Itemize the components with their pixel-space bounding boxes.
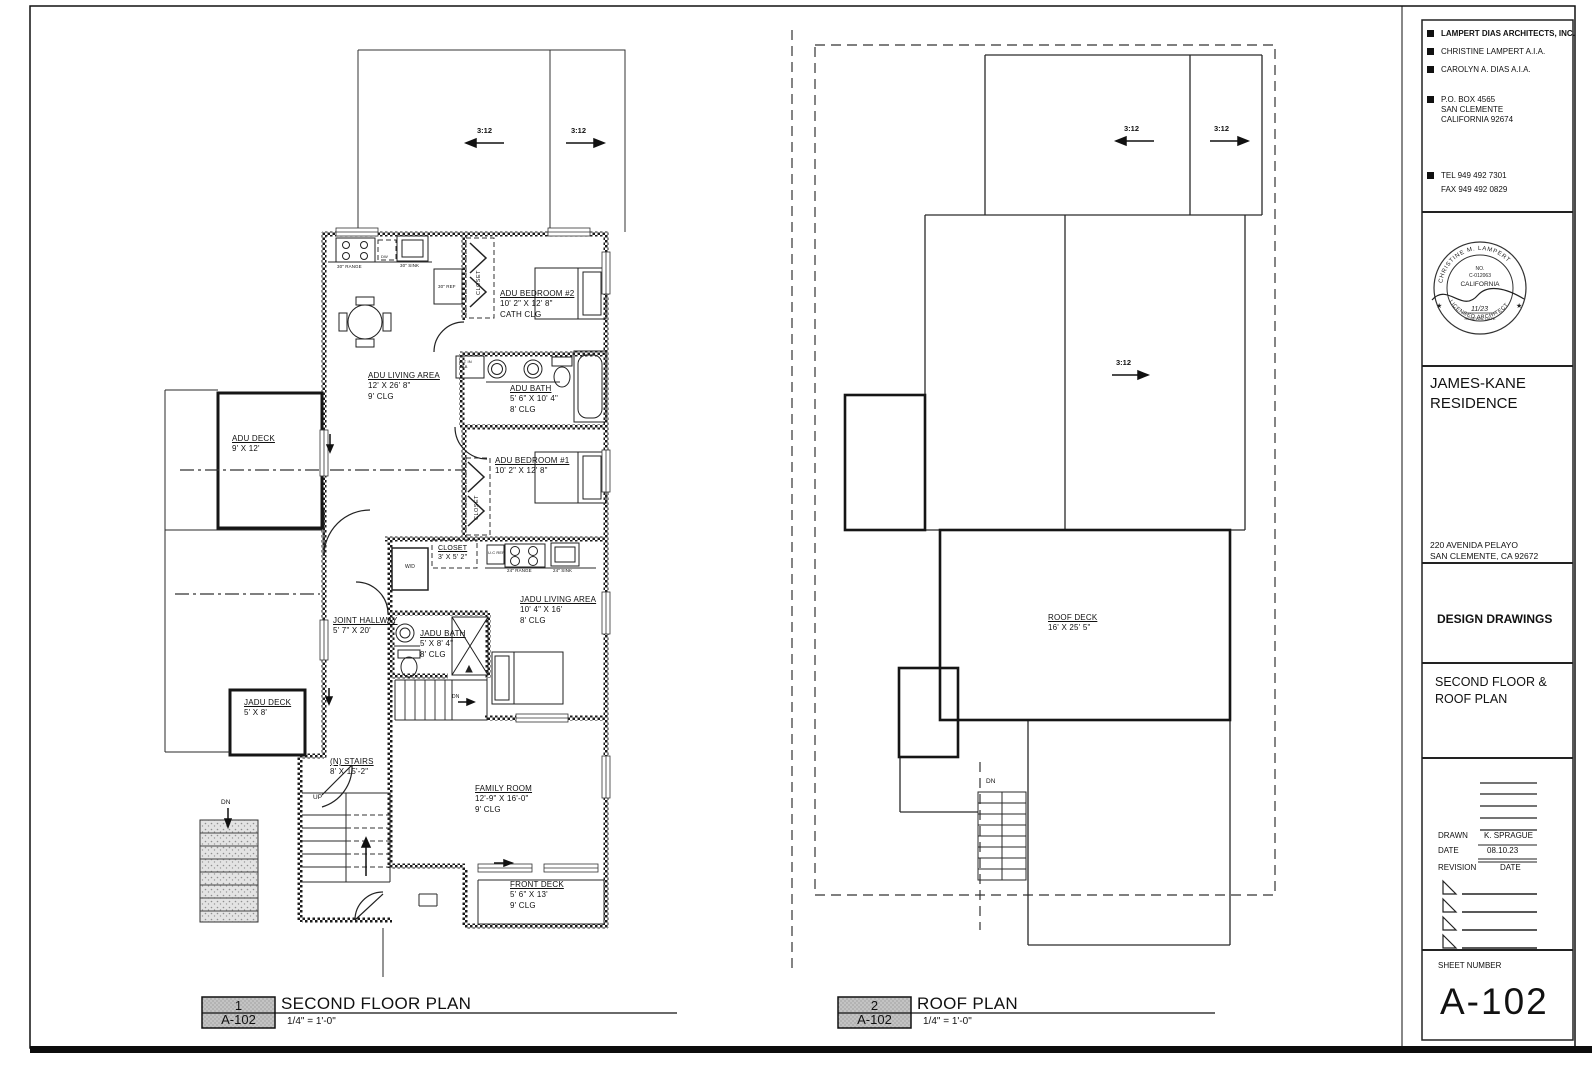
plan2-scale: 1/4" = 1'-0" — [923, 1016, 972, 1027]
architect1-name: CHRISTINE LAMPERT A.I.A. — [1441, 47, 1545, 57]
plan2-title: ROOF PLAN — [917, 994, 1018, 1014]
room-dim: 10' 4" X 16' — [520, 605, 596, 615]
plan1-callout-sheet: A-102 — [202, 1012, 275, 1027]
closet-vertical-label-2: CLOSET — [474, 495, 480, 520]
plan2-stairs — [978, 792, 1026, 880]
stamp-license: C-012063 — [1469, 273, 1491, 279]
bullet-square-icon — [1427, 96, 1434, 103]
plan2-pitch-left-label: 3:12 — [1124, 124, 1139, 133]
room-label-joint-hallway: JOINT HALLWAY 5' 7" X 20' — [333, 616, 398, 637]
washer-dryer-label: W/D — [396, 564, 424, 570]
architect-stamp: CHRISTINE M. LAMPERT LICENSED ARCHITECT … — [1432, 242, 1526, 334]
room-clg: 9' CLG — [368, 392, 440, 402]
range30-label: 30" RANGE — [337, 264, 362, 269]
stairs-up-label: UP — [313, 794, 322, 802]
sheet-number: A-102 — [1440, 978, 1549, 1026]
room-dim: 3' X 5' 2" — [438, 553, 467, 562]
plan1-pitch-left-label: 3:12 — [477, 126, 492, 135]
room-clg: 8' CLG — [510, 405, 558, 415]
po-box: P.O. BOX 4565 — [1441, 95, 1495, 105]
project-address-line1: 220 AVENIDA PELAYO — [1430, 540, 1518, 551]
interior-stairs-dn-label: DN — [452, 694, 459, 700]
plan1-scale: 1/4" = 1'-0" — [287, 1016, 336, 1027]
po-state: CALIFORNIA 92674 — [1441, 115, 1513, 125]
plan1-exterior-stairs — [200, 820, 258, 922]
room-name: JADU LIVING AREA — [520, 595, 596, 605]
drawn-value: K. SPRAGUE — [1484, 831, 1533, 841]
room-label-n-stairs: (N) STAIRS 8' X 15'-2" — [330, 757, 374, 778]
room-dim: 16' X 25' 5" — [1048, 623, 1097, 633]
room-clg: 8' CLG — [420, 650, 466, 660]
plan2-pitch-mid-label: 3:12 — [1116, 358, 1131, 367]
room-dim: 12' X 26' 8" — [368, 381, 440, 391]
plan1-title: SECOND FLOOR PLAN — [281, 994, 471, 1014]
room-dim: 5' 7" X 20' — [333, 626, 398, 636]
sheet-number-label: SHEET NUMBER — [1438, 961, 1501, 971]
room-label-jadu-deck: JADU DECK 5' X 8' — [244, 698, 291, 719]
uc-ref-label: U.C REF — [488, 551, 505, 556]
room-label-jadu-bath: JADU BATH 5' X 8' 4" 8' CLG — [420, 629, 466, 660]
firm-name: LAMPERT DIAS ARCHITECTS, INC. — [1441, 29, 1575, 39]
room-name: (N) STAIRS — [330, 757, 374, 767]
plan2-arrows — [1112, 137, 1248, 379]
room-dim: 5' 6" X 10' 4" — [510, 394, 558, 404]
room-label-family-room: FAMILY ROOM 12'-9" X 16'-0" 9' CLG — [475, 784, 532, 815]
room-label-roof-deck: ROOF DECK 16' X 25' 5" — [1048, 613, 1097, 634]
room-clg: CATH CLG — [500, 310, 574, 320]
sink24-label: 24" SINK — [553, 568, 572, 573]
revision-date-label: DATE — [1500, 863, 1521, 873]
room-name: ADU BATH — [510, 384, 558, 394]
room-name: ADU BEDROOM #1 — [495, 456, 569, 466]
sink30-label: 30" SINK — [400, 263, 419, 268]
closet-vertical-label-1: CLOSET — [476, 270, 482, 295]
drawn-label: DRAWN — [1438, 831, 1468, 841]
built-in-cab-label: BLT IN CAB — [459, 360, 481, 370]
drawing-sheet: CHRISTINE M. LAMPERT LICENSED ARCHITECT … — [0, 0, 1592, 1066]
dishwasher-label: DW — [381, 255, 388, 260]
plan1-roof-outline — [358, 50, 625, 232]
fax-number: FAX 949 492 0829 — [1441, 185, 1507, 195]
sheet-title: SECOND FLOOR & ROOF PLAN — [1435, 674, 1547, 708]
phase-label: DESIGN DRAWINGS — [1437, 612, 1552, 628]
room-name: ROOF DECK — [1048, 613, 1097, 623]
bullet-square-icon — [1427, 172, 1434, 179]
room-label-front-deck: FRONT DECK 5' 6" X 13' 9' CLG — [510, 880, 564, 911]
room-dim: 8' X 15'-2" — [330, 767, 374, 777]
room-dim: 10' 2" X 12' 8" — [500, 299, 574, 309]
stamp-state: CALIFORNIA — [1460, 281, 1500, 288]
phone-number: TEL 949 492 7301 — [1441, 171, 1507, 181]
stamp-star-right: ★ — [1516, 302, 1522, 310]
room-dim: 10' 2" X 12' 8" — [495, 466, 569, 476]
bullet-square-icon — [1427, 66, 1434, 73]
room-clg: 9' CLG — [510, 901, 564, 911]
stamp-signature — [1432, 288, 1524, 301]
room-name: FRONT DECK — [510, 880, 564, 890]
bullet-square-icon — [1427, 48, 1434, 55]
exterior-stairs-dn-label: DN — [221, 799, 231, 807]
room-clg: 9' CLG — [475, 805, 532, 815]
stamp-star-left: ★ — [1436, 302, 1442, 310]
room-label-closet: CLOSET 3' X 5' 2" — [438, 544, 467, 562]
po-city: SAN CLEMENTE — [1441, 105, 1503, 115]
plan1-arrows — [225, 139, 604, 876]
room-dim: 5' 6" X 13' — [510, 890, 564, 900]
sheet-linework: CHRISTINE M. LAMPERT LICENSED ARCHITECT … — [0, 0, 1592, 1066]
project-address-line2: SAN CLEMENTE, CA 92672 — [1430, 551, 1538, 562]
room-dim: 5' X 8' — [244, 708, 291, 718]
room-name: ADU LIVING AREA — [368, 371, 440, 381]
room-label-jadu-living: JADU LIVING AREA 10' 4" X 16' 8' CLG — [520, 595, 596, 626]
stamp-date: 11/23 — [1471, 306, 1488, 313]
room-name: JOINT HALLWAY — [333, 616, 398, 626]
plan2-dashed — [792, 30, 1275, 968]
room-label-adu-deck: ADU DECK 9' X 12' — [232, 434, 275, 455]
room-name: JADU BATH — [420, 629, 466, 639]
ref30-label: 30" REF — [438, 284, 456, 289]
room-dim: 5' X 8' 4" — [420, 639, 466, 649]
room-label-adu-bedroom2: ADU BEDROOM #2 10' 2" X 12' 8" CATH CLG — [500, 289, 574, 320]
stamp-no: NO. — [1476, 266, 1485, 272]
plan2-callout-number: 2 — [838, 998, 911, 1013]
plan2-roof-lines — [845, 55, 1262, 945]
date-label: DATE — [1438, 846, 1459, 856]
plan2-callout-sheet: A-102 — [838, 1012, 911, 1027]
room-name: FAMILY ROOM — [475, 784, 532, 794]
plan2-pitch-right-label: 3:12 — [1214, 124, 1229, 133]
room-label-adu-bath: ADU BATH 5' 6" X 10' 4" 8' CLG — [510, 384, 558, 415]
room-name: ADU DECK — [232, 434, 275, 444]
plan2-thick-rects — [845, 395, 1230, 757]
roof-stairs-dn-label: DN — [986, 778, 996, 786]
room-clg: 8' CLG — [520, 616, 596, 626]
room-name: JADU DECK — [244, 698, 291, 708]
room-label-adu-bedroom1: ADU BEDROOM #1 10' 2" X 12' 8" — [495, 456, 569, 477]
stamp-renewal: RENEWAL DATE — [1465, 316, 1496, 321]
plan1-pitch-right-label: 3:12 — [571, 126, 586, 135]
plan1-callout-number: 1 — [202, 998, 275, 1013]
date-value: 08.10.23 — [1487, 846, 1518, 856]
project-name: JAMES-KANE RESIDENCE — [1430, 374, 1552, 415]
range24-label: 24" RANGE — [507, 568, 532, 573]
room-name: ADU BEDROOM #2 — [500, 289, 574, 299]
room-dim: 12'-9" X 16'-0" — [475, 794, 532, 804]
architect2-name: CAROLYN A. DIAS A.I.A. — [1441, 65, 1531, 75]
room-label-adu-living: ADU LIVING AREA 12' X 26' 8" 9' CLG — [368, 371, 440, 402]
bullet-square-icon — [1427, 30, 1434, 37]
room-dim: 9' X 12' — [232, 444, 275, 454]
room-name: CLOSET — [438, 544, 467, 553]
revision-label: REVISION — [1438, 863, 1476, 873]
